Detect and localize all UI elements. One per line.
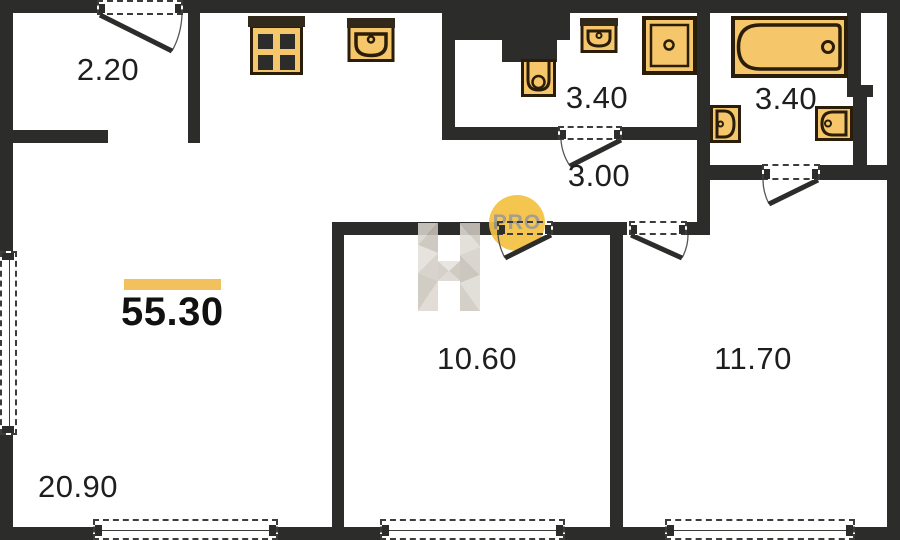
wall: [855, 527, 900, 540]
shaft-wall: [853, 93, 867, 165]
wall: [442, 13, 455, 140]
wall: [820, 165, 887, 180]
wall: [278, 527, 380, 540]
room1-door-opening: [497, 221, 553, 235]
bathroom2-door-opening: [762, 164, 820, 180]
wall: [13, 130, 108, 143]
wall: [847, 13, 861, 93]
window: [665, 519, 855, 540]
wall: [687, 222, 710, 235]
room1-door-swing: [494, 235, 556, 265]
wall: [610, 235, 623, 527]
room-area-label: 3.00: [568, 158, 630, 194]
window: [380, 519, 565, 540]
wall: [188, 13, 200, 143]
washbasin-icon: [815, 106, 853, 141]
wall: [697, 13, 710, 235]
wall: [0, 0, 97, 13]
room-area-label: 20.90: [38, 469, 118, 505]
kitchen-sink-icon: [347, 18, 395, 62]
total-area-accent-bar: [124, 279, 221, 290]
wall: [0, 435, 13, 540]
wall: [183, 0, 900, 13]
duct-block: [455, 13, 570, 40]
window: [0, 251, 17, 435]
wall: [0, 0, 13, 251]
room-area-label: 2.20: [77, 52, 139, 88]
room-area-label: 3.40: [755, 81, 817, 117]
wall: [553, 222, 627, 235]
room-area-label: 10.60: [437, 341, 517, 377]
wall: [0, 527, 93, 540]
room2-door-swing: [626, 235, 700, 265]
room-area-label: 11.70: [714, 341, 792, 377]
room2-door-opening: [629, 221, 687, 235]
wall: [442, 127, 558, 140]
total-area-label: 55.30: [121, 290, 224, 335]
wall-toilet-icon: [521, 59, 556, 97]
bathtub-icon: [731, 16, 848, 78]
wall: [710, 165, 762, 180]
washbasin-icon: [580, 18, 618, 53]
floor-plan: PRO: [0, 0, 900, 540]
wall: [887, 0, 900, 540]
bathroom1-door-opening: [558, 126, 622, 140]
window: [93, 519, 278, 540]
watermark-letter-icon: [418, 223, 480, 311]
stove-icon: [248, 16, 305, 77]
wall: [332, 235, 344, 527]
bathroom2-door-swing: [760, 180, 823, 210]
toilet-icon: [710, 105, 741, 143]
wall: [565, 527, 665, 540]
room-area-label: 3.40: [566, 80, 628, 116]
shower-icon: [642, 16, 697, 75]
